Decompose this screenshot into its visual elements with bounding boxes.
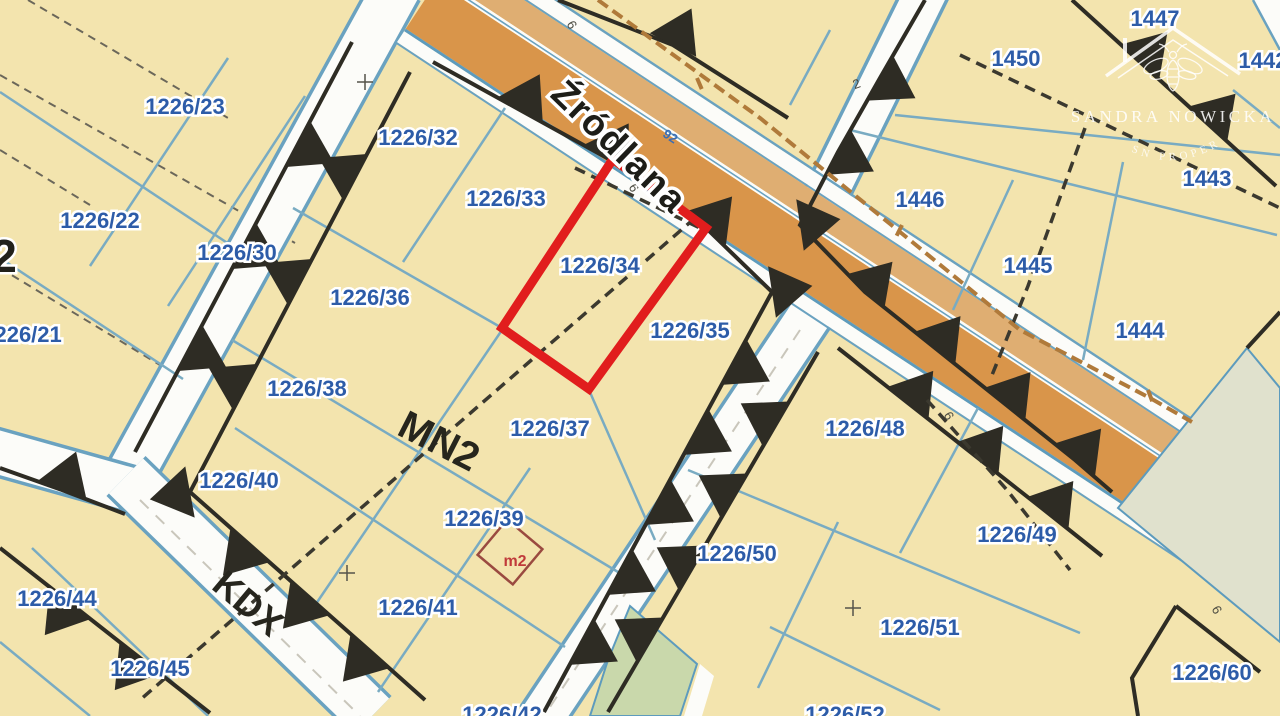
- parcel-label: 1226/44: [17, 586, 97, 611]
- parcel-label: 1226/60: [1172, 660, 1252, 685]
- parcel-label: 1226/32: [378, 125, 458, 150]
- parcel-label: 1226/30: [197, 240, 277, 265]
- m2-marker-label: m2: [503, 553, 526, 570]
- parcel-label: 1445: [1004, 253, 1053, 278]
- parcel-label: 1226/38: [267, 376, 347, 401]
- cadastral-map-screenshot: m2 6 6 6 6 92 2 Źródlana MN2 KDX 1226/23…: [0, 0, 1280, 716]
- parcel-label: 1226/49: [977, 522, 1057, 547]
- parcel-label: 1226/42: [462, 702, 542, 716]
- parcel-label: 1450: [992, 46, 1041, 71]
- parcel-label: 1226/45: [110, 656, 190, 681]
- parcel-label: 1226/41: [378, 595, 458, 620]
- parcel-label-highlighted: 1226/34: [560, 253, 640, 278]
- watermark-brand-text: SANDRA NOWICKA: [1071, 107, 1275, 126]
- parcel-label: 1226/40: [199, 468, 279, 493]
- parcel-label: 1226/35: [650, 318, 730, 343]
- parcel-label: 1226/50: [697, 541, 777, 566]
- parcel-label: 1226/48: [825, 416, 905, 441]
- parcel-label: 1226/33: [466, 186, 546, 211]
- map-canvas[interactable]: m2 6 6 6 6 92 2 Źródlana MN2 KDX 1226/23…: [0, 0, 1280, 716]
- parcel-label: 1226/23: [145, 94, 225, 119]
- parcel-label: 1226/21: [0, 322, 62, 347]
- parcel-label: 1226/37: [510, 416, 590, 441]
- parcel-label: 1226/39: [444, 506, 524, 531]
- parcel-label: 1226/51: [880, 615, 960, 640]
- parcel-label: 1446: [896, 187, 945, 212]
- block-number-label: 2: [0, 230, 17, 282]
- parcel-label: 1226/52: [805, 702, 885, 716]
- parcel-label: 1226/22: [60, 208, 140, 233]
- parcel-label: 1443: [1183, 166, 1232, 191]
- parcel-label: 1442: [1239, 48, 1280, 73]
- parcel-label: 1444: [1116, 318, 1166, 343]
- parcel-label: 1226/36: [330, 285, 410, 310]
